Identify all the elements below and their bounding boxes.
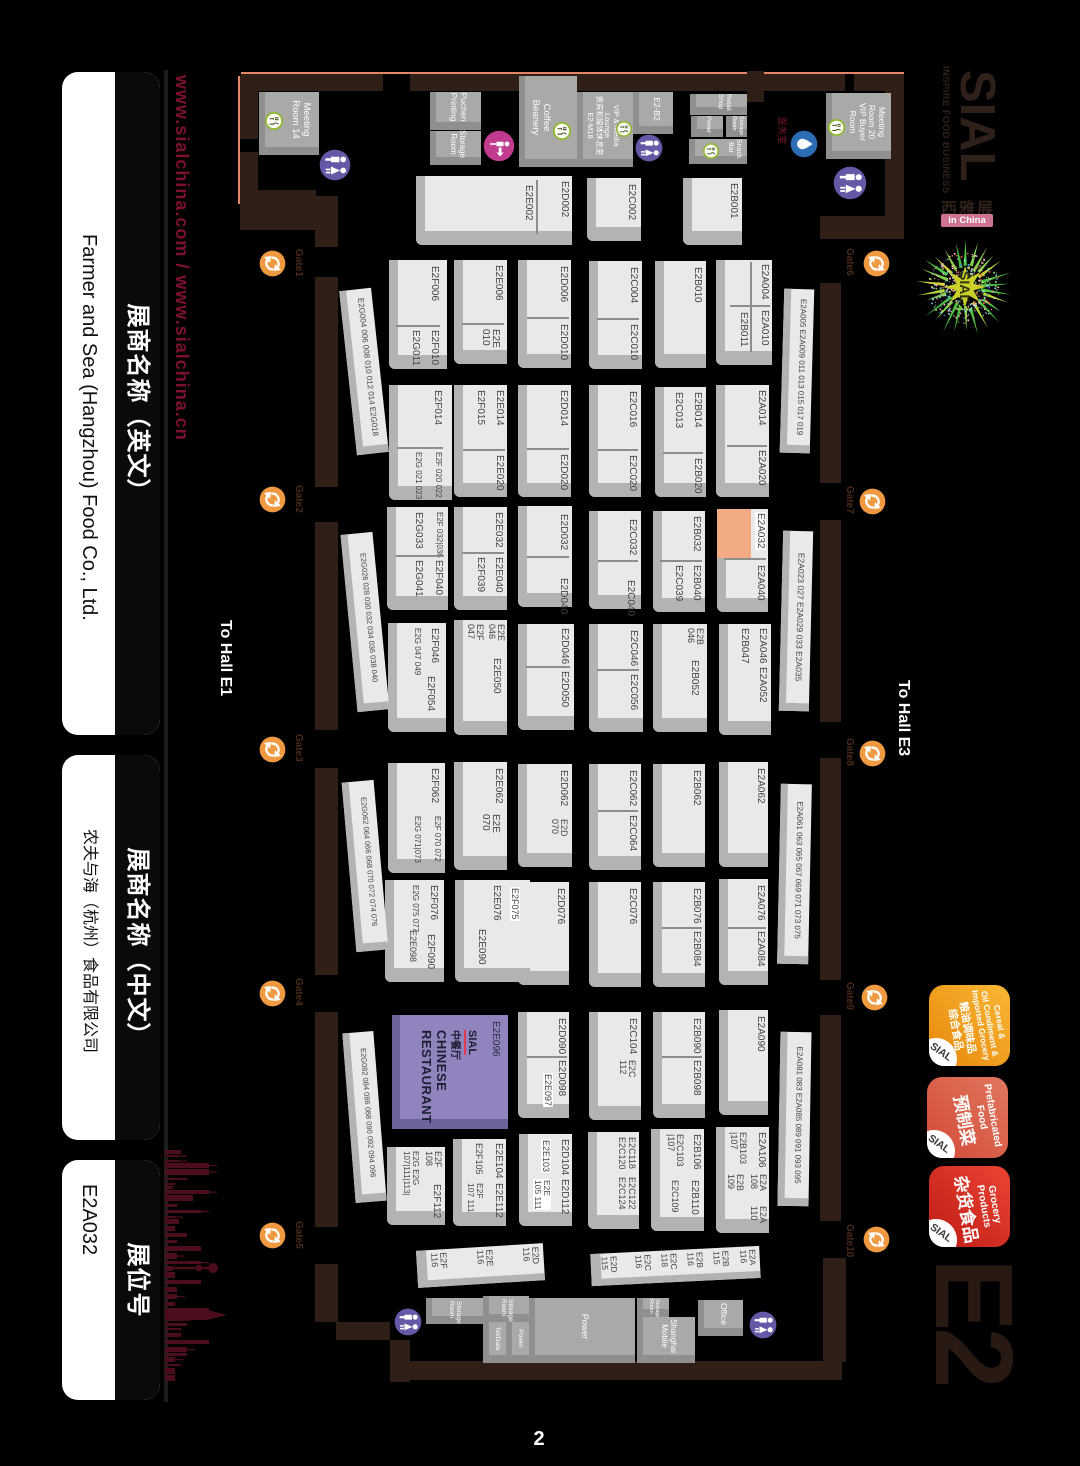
- svg-text:SIAL: SIAL: [957, 271, 973, 303]
